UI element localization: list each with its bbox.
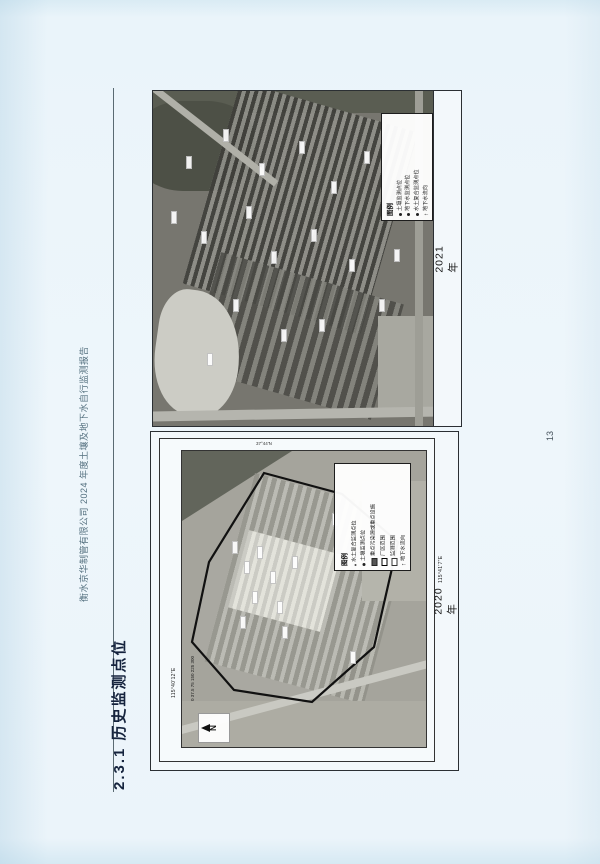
year-label-2021: 2021 年 (433, 245, 460, 272)
legend-item: 厂区范围 (381, 468, 387, 566)
flow-direction-arrow-icon (424, 213, 430, 216)
soil-point-icon (362, 563, 365, 566)
point-label-marker (233, 299, 239, 312)
legend-title: 图例 (338, 468, 348, 566)
factory-boundary-icon (381, 558, 387, 566)
satellite-map-2021: 图例 土壤监测点位 地下水监测点位 水土复合监测点位 地下水流向 (153, 91, 434, 426)
point-label-marker (270, 571, 276, 584)
legend-item: 地下水监测点位 (406, 118, 411, 216)
pollution-source-icon (371, 558, 377, 566)
soil-point-icon (399, 213, 402, 216)
point-label-marker (350, 651, 356, 664)
section-heading: 2.3.1 历史监测点位 (108, 638, 129, 790)
point-label-marker (281, 329, 287, 342)
point-label-marker (259, 163, 265, 176)
point-label-marker (311, 229, 317, 242)
point-label-marker (207, 353, 213, 366)
flow-direction-arrow-icon (401, 563, 407, 566)
year-label-2020: 2020 年 (432, 587, 459, 614)
page-number: 13 (545, 431, 555, 441)
point-label-marker (271, 251, 277, 264)
composite-point-icon (354, 564, 356, 566)
groundwater-point-icon (407, 213, 410, 216)
point-label-marker (364, 151, 370, 164)
point-label-marker (201, 231, 207, 244)
legend-title: 图例 (384, 118, 394, 216)
legend-item: 地下水流向 (424, 118, 430, 216)
coordinate-label-north: 37°44'N (256, 441, 272, 446)
figure-2020: N 0 37.5 75 150 225 300 图例 水土复合监测点位 土壤监测… (150, 431, 459, 771)
north-arrow: N (198, 713, 230, 743)
point-label-marker (299, 141, 305, 154)
year-band-2020: 2020 年 (433, 432, 458, 770)
legend-item: 地下水流向 (401, 468, 407, 566)
legend-item: 土壤监测点位 (398, 118, 403, 216)
year-band-2021: 2021 年 (432, 91, 461, 426)
legend-item: 水土复合监测点位 (352, 468, 357, 566)
point-label-marker (331, 181, 337, 194)
point-label-marker (171, 211, 177, 224)
coordinate-label-west: 115°40'12"E (171, 668, 177, 698)
point-label-marker (319, 319, 325, 332)
point-label-marker (379, 299, 385, 312)
point-label-marker (223, 129, 229, 142)
legend-2021: 图例 土壤监测点位 地下水监测点位 水土复合监测点位 地下水流向 (381, 113, 433, 221)
legend-item: 水土复合监测点位 (415, 118, 420, 216)
scale-bar: 0 37.5 75 150 225 300 (190, 656, 195, 701)
point-label-marker (349, 259, 355, 272)
scanned-report-page: 衡水京华制管有限公司 2024 年度土壤及地下水自行监测报告 2.3.1 历史监… (0, 0, 600, 864)
point-label-marker (252, 591, 258, 604)
point-label-marker (394, 249, 400, 262)
legend-item: 重点污染源或重点设施 (371, 468, 377, 566)
legend-2020: 图例 水土复合监测点位 土壤监测点位 重点污染源或重点设施 厂区范围 监测范围 … (334, 463, 411, 571)
figure-2021: 图例 土壤监测点位 地下水监测点位 水土复合监测点位 地下水流向 2021 年 (152, 90, 462, 427)
point-label-marker (257, 546, 263, 559)
legend-item: 土壤监测点位 (361, 468, 366, 566)
point-label-marker (277, 601, 283, 614)
point-label-marker (244, 561, 250, 574)
report-header-title: 衡水京华制管有限公司 2024 年度土壤及地下水自行监测报告 (77, 346, 90, 602)
point-label-marker (292, 556, 298, 569)
point-label-marker (246, 206, 252, 219)
composite-point-icon (416, 213, 419, 216)
point-label-marker (186, 156, 192, 169)
point-label-marker (282, 626, 288, 639)
legend-item: 监测范围 (391, 468, 397, 566)
point-label-marker (232, 541, 238, 554)
monitor-extent-icon (391, 558, 397, 566)
point-label-marker (240, 616, 246, 629)
